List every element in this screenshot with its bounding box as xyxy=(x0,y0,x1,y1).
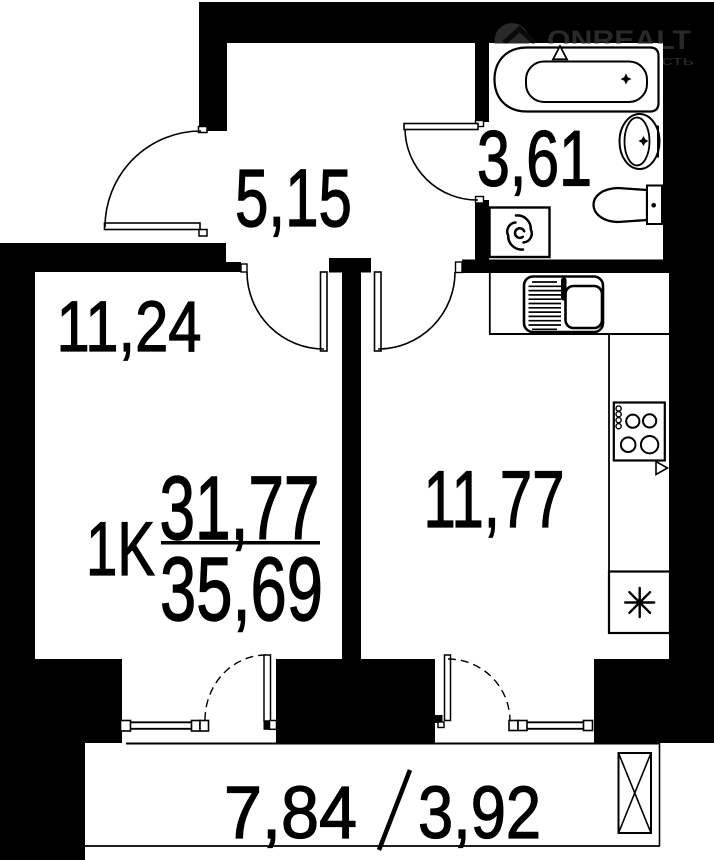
svg-text:7,84: 7,84 xyxy=(224,771,357,854)
svg-text:5,15: 5,15 xyxy=(235,153,352,244)
svg-text:35,69: 35,69 xyxy=(160,540,323,640)
svg-text:1K: 1K xyxy=(86,507,155,592)
svg-text:3,92: 3,92 xyxy=(418,771,541,854)
svg-text:11,24: 11,24 xyxy=(57,288,202,367)
svg-text:3,61: 3,61 xyxy=(477,114,592,203)
svg-text:11,77: 11,77 xyxy=(424,455,565,545)
